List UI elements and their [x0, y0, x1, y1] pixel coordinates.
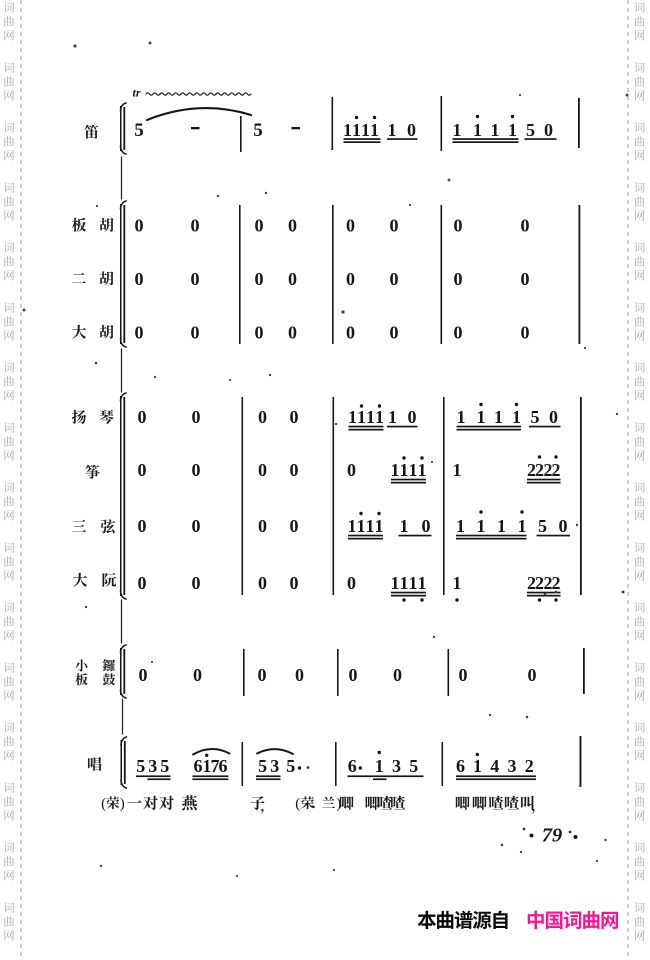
svg-text:0: 0 [191, 216, 200, 236]
svg-text:1: 1 [508, 120, 517, 140]
svg-text:0: 0 [544, 120, 553, 140]
svg-text:0: 0 [192, 407, 201, 427]
svg-text:5: 5 [538, 516, 547, 536]
svg-text:2: 2 [552, 460, 561, 480]
svg-text:3: 3 [392, 756, 401, 776]
svg-text:0: 0 [422, 516, 431, 536]
svg-text:4: 4 [490, 756, 499, 776]
svg-text:0: 0 [138, 407, 147, 427]
svg-text:5: 5 [160, 756, 169, 776]
svg-text:0: 0 [521, 269, 530, 289]
svg-text:1: 1 [418, 573, 427, 593]
svg-text:0: 0 [454, 323, 463, 343]
svg-text:1: 1 [352, 120, 361, 140]
svg-text:0: 0 [454, 216, 463, 236]
svg-text:0: 0 [255, 216, 264, 236]
svg-text:0: 0 [135, 216, 144, 236]
svg-text:6: 6 [456, 756, 465, 776]
svg-text:1: 1 [453, 120, 462, 140]
svg-text:1: 1 [477, 407, 486, 427]
svg-text:1: 1 [518, 516, 527, 536]
svg-text:3: 3 [148, 756, 157, 776]
svg-text:0: 0 [258, 573, 267, 593]
svg-text:0: 0 [521, 323, 530, 343]
svg-text:0: 0 [138, 573, 147, 593]
svg-text:0: 0 [347, 460, 356, 480]
svg-text:0: 0 [138, 516, 147, 536]
svg-text:1: 1 [477, 516, 486, 536]
svg-text:0: 0 [191, 269, 200, 289]
svg-text:0: 0 [454, 269, 463, 289]
svg-text:0: 0 [288, 216, 297, 236]
svg-text:0: 0 [549, 407, 558, 427]
svg-text:0: 0 [288, 269, 297, 289]
svg-text:1: 1 [348, 407, 357, 427]
svg-text:5: 5 [253, 120, 263, 141]
svg-text:0: 0 [408, 407, 417, 427]
svg-text:1: 1 [453, 460, 462, 480]
svg-text:0: 0 [258, 665, 267, 685]
svg-text:79: 79 [542, 825, 563, 847]
svg-text:5: 5 [409, 756, 418, 776]
svg-text:1: 1 [388, 407, 397, 427]
svg-text:1: 1 [370, 120, 379, 140]
svg-text:0: 0 [135, 323, 144, 343]
svg-text:0: 0 [528, 665, 537, 685]
svg-text:1: 1 [375, 756, 384, 776]
svg-text:0: 0 [295, 665, 304, 685]
svg-text:1: 1 [473, 120, 482, 140]
svg-text:6: 6 [219, 756, 228, 776]
svg-text:5: 5 [136, 756, 145, 776]
svg-text:0: 0 [349, 665, 358, 685]
svg-text:(: ( [101, 796, 106, 812]
svg-text:1: 1 [391, 573, 400, 593]
svg-text:0: 0 [138, 460, 147, 480]
svg-text:0: 0 [390, 323, 399, 343]
svg-text:0: 0 [258, 460, 267, 480]
svg-text:0: 0 [290, 460, 299, 480]
svg-text:0: 0 [390, 269, 399, 289]
svg-text:5: 5 [286, 756, 295, 776]
svg-text:5: 5 [531, 407, 540, 427]
svg-text:0: 0 [288, 323, 297, 343]
svg-text:6: 6 [194, 756, 203, 776]
svg-text:2: 2 [525, 756, 534, 776]
svg-text:1: 1 [388, 120, 397, 140]
svg-text:1: 1 [366, 407, 375, 427]
svg-text:0: 0 [191, 323, 200, 343]
svg-text:0: 0 [258, 407, 267, 427]
svg-text:0: 0 [135, 269, 144, 289]
svg-text:1: 1 [400, 573, 409, 593]
svg-text:5: 5 [134, 120, 144, 141]
svg-text:0: 0 [258, 516, 267, 536]
svg-text:0: 0 [347, 573, 356, 593]
svg-text:0: 0 [192, 573, 201, 593]
svg-text:0: 0 [290, 407, 299, 427]
svg-text:1: 1 [409, 573, 418, 593]
svg-text:0: 0 [193, 665, 202, 685]
svg-text:5: 5 [526, 120, 535, 140]
svg-text:1: 1 [491, 120, 500, 140]
svg-text:3: 3 [508, 756, 517, 776]
svg-text:0: 0 [346, 323, 355, 343]
svg-text:1: 1 [494, 407, 503, 427]
svg-text:0: 0 [139, 665, 148, 685]
svg-text:0: 0 [290, 516, 299, 536]
svg-text:0: 0 [459, 665, 468, 685]
svg-text:1: 1 [457, 407, 466, 427]
svg-text:1: 1 [400, 516, 409, 536]
svg-text:1: 1 [366, 516, 375, 536]
svg-text:0: 0 [559, 516, 568, 536]
svg-text:0: 0 [192, 516, 201, 536]
svg-text:0: 0 [192, 460, 201, 480]
svg-text:1: 1 [343, 120, 352, 140]
svg-text:1: 1 [456, 516, 465, 536]
svg-text:0: 0 [255, 323, 264, 343]
svg-text:(: ( [295, 796, 300, 812]
svg-text:1: 1 [418, 460, 427, 480]
svg-text:6: 6 [348, 756, 357, 776]
svg-text:0: 0 [390, 216, 399, 236]
svg-text:1: 1 [512, 407, 521, 427]
svg-text:1: 1 [497, 516, 506, 536]
svg-text:1: 1 [375, 407, 384, 427]
svg-text:1: 1 [375, 516, 384, 536]
svg-text:tr: tr [132, 86, 140, 100]
svg-text:5: 5 [258, 756, 267, 776]
svg-text:2: 2 [552, 573, 561, 593]
svg-text:0: 0 [290, 573, 299, 593]
svg-text:0: 0 [255, 269, 264, 289]
svg-text:1: 1 [361, 120, 370, 140]
svg-text:1: 1 [409, 460, 418, 480]
svg-text:0: 0 [393, 665, 402, 685]
svg-text:0: 0 [346, 216, 355, 236]
svg-text:): ) [120, 796, 125, 812]
svg-text:0: 0 [521, 216, 530, 236]
svg-text:3: 3 [270, 756, 279, 776]
svg-text:1: 1 [357, 407, 366, 427]
svg-text:0: 0 [346, 269, 355, 289]
svg-text:1: 1 [473, 756, 482, 776]
svg-text:1: 1 [348, 516, 357, 536]
svg-text:1: 1 [453, 573, 462, 593]
svg-text:1: 1 [400, 460, 409, 480]
svg-text:1: 1 [357, 516, 366, 536]
svg-text:1: 1 [391, 460, 400, 480]
svg-text:0: 0 [407, 120, 416, 140]
